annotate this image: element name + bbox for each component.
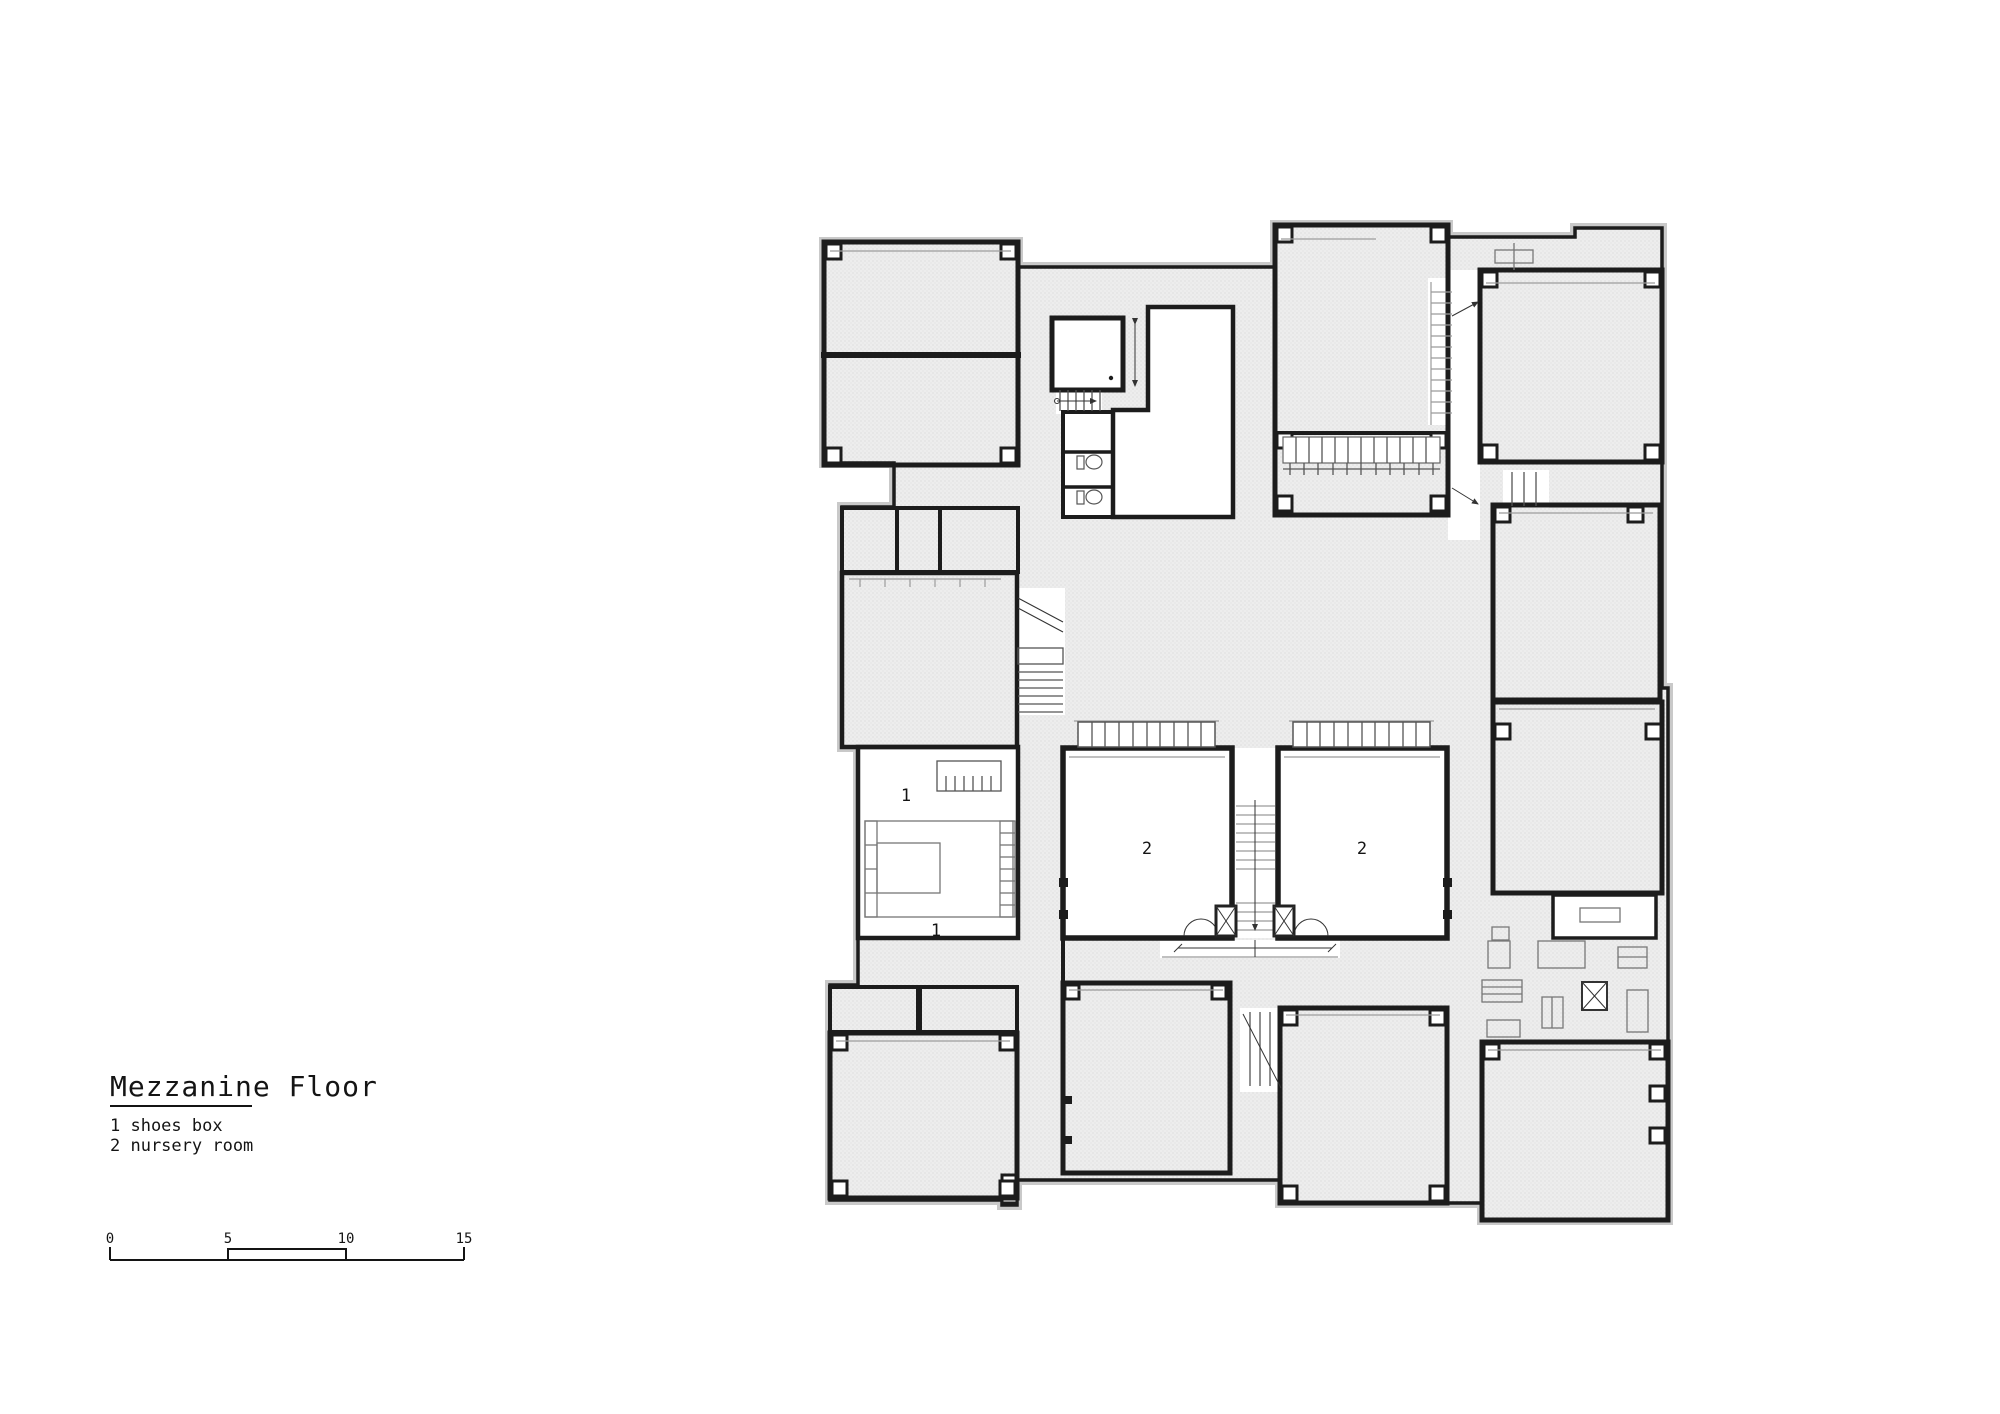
scale-bar: 0 5 10 15	[106, 1231, 473, 1260]
bench-top-center-room	[1283, 437, 1440, 475]
floor-plan-drawing: 1 1 2 2 Mezzanine Floor 1 shoes box 2 nu…	[0, 0, 2000, 1414]
floor-plan-sheet: 1 1 2 2 Mezzanine Floor 1 shoes box 2 nu…	[0, 0, 2000, 1414]
x-table	[1582, 982, 1607, 1010]
elevator-dot	[1109, 376, 1113, 380]
label-shoes-lower: 1	[931, 921, 941, 941]
niche-room	[1553, 895, 1656, 938]
legend-item-1: 1 shoes box	[110, 1116, 223, 1136]
scale-tick-0: 0	[106, 1231, 114, 1247]
page-title: Mezzanine Floor	[110, 1070, 378, 1103]
scale-tick-5: 5	[224, 1231, 232, 1247]
title-block: Mezzanine Floor 1 shoes box 2 nursery ro…	[110, 1070, 378, 1156]
scale-tick-10: 10	[338, 1231, 355, 1247]
label-nursery-left: 2	[1142, 839, 1152, 859]
toilet-1	[1077, 455, 1102, 469]
scale-tick-15: 15	[456, 1231, 473, 1247]
bench-nursery-right	[1289, 721, 1434, 747]
legend-item-2: 2 nursery room	[110, 1136, 253, 1156]
bench-nursery-left	[1074, 721, 1219, 747]
label-shoes-upper: 1	[901, 786, 911, 806]
toilet-2	[1077, 490, 1102, 504]
label-nursery-right: 2	[1357, 839, 1367, 859]
